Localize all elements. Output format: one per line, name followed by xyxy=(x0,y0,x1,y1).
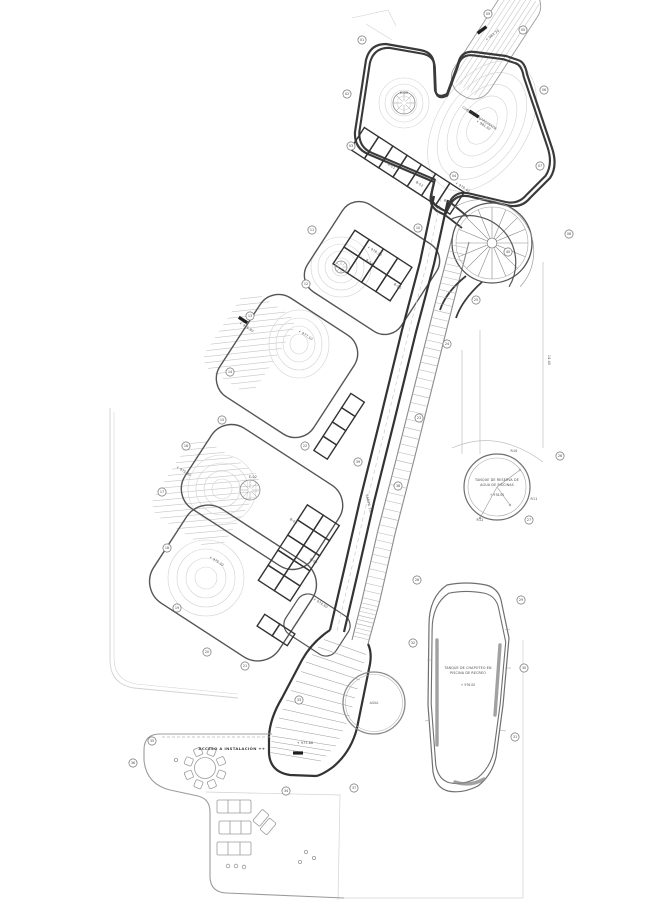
grid-bubble: 39 xyxy=(354,458,362,466)
grid-bubble-number: 38 xyxy=(396,484,400,488)
grid-bubble: 32 xyxy=(409,639,417,647)
grid-bubble-number: 04 xyxy=(452,174,456,178)
chair xyxy=(207,779,217,789)
grid-bubble-number: 27 xyxy=(527,518,531,522)
room-block xyxy=(333,230,412,301)
tank-label-line2: AGUA DE PISCINAS xyxy=(480,483,514,487)
room-block xyxy=(314,393,364,459)
grid-bubble-number: 32 xyxy=(411,641,415,645)
grid-bubble: 38 xyxy=(394,482,402,490)
lower-cluster-outline-a xyxy=(172,415,352,578)
terrace-access-label: ACCESO A INSTALACIÓN ++ xyxy=(199,746,266,751)
plan-label: R11 xyxy=(531,497,538,501)
grid-bubble-number: 18 xyxy=(165,546,169,550)
grid-bubble: 09 xyxy=(484,10,492,18)
grid-bubble: 03 xyxy=(347,142,355,150)
grid-bubble: 23 xyxy=(415,414,423,422)
grid-bubble: 35 xyxy=(148,737,156,745)
label-chips xyxy=(238,25,487,754)
plan-label: + 977.10 xyxy=(298,329,314,341)
grid-bubble-number: 25 xyxy=(474,298,478,302)
grid-bubble: 24 xyxy=(443,340,451,348)
road-edge-left-inner xyxy=(114,412,238,694)
pool-label-line2: PISCINA DE RECREO xyxy=(450,671,486,675)
grid-bubble-number: 19 xyxy=(175,606,179,610)
chair xyxy=(193,779,203,789)
grid-bubble-number: 07 xyxy=(538,164,542,168)
grid-bubble: 34 xyxy=(282,787,290,795)
grid-bubble-number: 30 xyxy=(522,666,526,670)
grid-bubble-number: 24 xyxy=(445,342,449,346)
grid-bubble-number: 01 xyxy=(360,38,364,42)
grid-bubble-number: 11 xyxy=(310,228,314,232)
chair xyxy=(184,770,194,780)
terrace-faint-rect xyxy=(206,792,340,900)
grid-bubble: 33 xyxy=(295,696,303,704)
grid-bubble: 29 xyxy=(517,596,525,604)
ramp-edge-west xyxy=(352,238,452,640)
terrain-contours xyxy=(269,310,329,378)
plan-label: + 973.80 xyxy=(297,741,314,745)
grid-bubble: 26 xyxy=(556,452,564,460)
grid-bubble: 22 xyxy=(301,442,309,450)
grid-bubble-number: 06 xyxy=(542,88,546,92)
plan-micro-labels: CUBIERTA AJARDINADA+ 981.60+ 983.20+ 979… xyxy=(176,29,551,745)
lower-cluster-outline-b xyxy=(140,495,327,671)
grid-bubble: 06 xyxy=(540,86,548,94)
small-spiral-stair xyxy=(393,92,415,114)
grid-bubble-number: 31 xyxy=(513,735,517,739)
plan-label: E-03 xyxy=(400,91,408,95)
grid-bubble-number: 20 xyxy=(205,650,209,654)
terrace-boundary xyxy=(144,734,344,898)
site-boundary-lines xyxy=(110,10,523,900)
label-chip xyxy=(293,751,303,754)
round-table xyxy=(195,758,216,779)
grid-bubble-number: 39 xyxy=(356,460,360,464)
floor-plan-svg: TANQUE DE CHAPOTEO EN PISCINA DE RECREO … xyxy=(0,0,650,920)
grid-bubble: 19 xyxy=(173,604,181,612)
plan-label: + 975.30 xyxy=(209,555,225,567)
ramp-treads xyxy=(353,244,467,639)
grid-bubble-number: 12 xyxy=(304,282,308,286)
spine-wall-east xyxy=(344,200,448,632)
building-outlines xyxy=(140,0,555,898)
planting-hatch xyxy=(194,274,304,406)
grid-bubble: 36 xyxy=(129,759,137,767)
grid-bubble: 28 xyxy=(413,576,421,584)
chair xyxy=(216,756,226,766)
grid-bubble-number: 33 xyxy=(297,698,301,702)
grid-bubble-number: 02 xyxy=(345,92,349,96)
table-chairs xyxy=(184,747,226,789)
road-edge-left xyxy=(110,408,238,698)
room-block xyxy=(257,614,295,645)
topleft-faint-marks xyxy=(352,10,396,40)
terrain-contours xyxy=(379,78,429,128)
grid-bubbles: 0102030405060708091011121314151617181920… xyxy=(129,10,573,795)
grid-bubble: 40 xyxy=(504,248,512,256)
grid-bubble: 10 xyxy=(414,224,422,232)
grid-bubble: 31 xyxy=(511,733,519,741)
grid-bubble: 37 xyxy=(350,784,358,792)
grid-bubble: 15 xyxy=(218,416,226,424)
pool-inner-line xyxy=(431,591,506,783)
tank-elevation: + 978.00 xyxy=(490,493,504,497)
grid-bubble-number: 05 xyxy=(521,28,525,32)
plan-label: + 975.90 xyxy=(176,465,192,477)
mid-cluster-outline xyxy=(297,194,448,342)
grid-bubble-number: 13 xyxy=(248,314,252,318)
grid-bubble: 20 xyxy=(203,648,211,656)
small-spiral-stair xyxy=(240,480,260,500)
tank-dim-arc xyxy=(452,441,543,462)
grid-bubble-number: 35 xyxy=(150,739,154,743)
grid-bubble-number: 26 xyxy=(558,454,562,458)
contour-layer xyxy=(168,41,559,616)
plan-label: R12 xyxy=(477,518,484,522)
grid-bubble-number: 40 xyxy=(506,250,510,254)
grid-bubble: 16 xyxy=(182,442,190,450)
tank-label-line1: TANQUE DE RESERVA DE xyxy=(474,478,519,482)
grid-bubble-number: 22 xyxy=(303,444,307,448)
grid-bubble: 30 xyxy=(520,664,528,672)
grid-bubble: 21 xyxy=(241,662,249,670)
pond-label: AGUA xyxy=(370,701,380,705)
grid-bubble-number: 08 xyxy=(567,232,571,236)
label-chip xyxy=(477,25,488,34)
grid-bubble: 01 xyxy=(358,36,366,44)
grid-bubble: 11 xyxy=(308,226,316,234)
plan-label: 14.40 xyxy=(547,355,551,365)
grid-bubble-number: 29 xyxy=(519,598,523,602)
grid-bubble-number: 34 xyxy=(284,789,288,793)
grid-bubble-number: 15 xyxy=(220,418,224,422)
grid-bubble-number: 10 xyxy=(416,226,420,230)
grid-bubble: 08 xyxy=(565,230,573,238)
grid-bubble-number: 14 xyxy=(228,370,232,374)
grid-bubble-number: 21 xyxy=(243,664,247,668)
grid-bubble: 04 xyxy=(450,172,458,180)
grid-bubble-number: 28 xyxy=(415,578,419,582)
plan-label: R10 xyxy=(511,449,518,453)
grid-bubble: 05 xyxy=(519,26,527,34)
grid-bubble-number: 16 xyxy=(184,444,188,448)
grid-bubble-number: 03 xyxy=(349,144,353,148)
pool-elevation: + 976.00 xyxy=(461,683,475,687)
grid-bubble: 25 xyxy=(472,296,480,304)
grid-bubble: 27 xyxy=(525,516,533,524)
grid-bubble-number: 36 xyxy=(131,761,135,765)
grid-bubble-number: 09 xyxy=(486,12,490,16)
chair xyxy=(184,756,194,766)
grid-bubble: 07 xyxy=(536,162,544,170)
grid-bubble: 13 xyxy=(246,312,254,320)
small-spiral-stair xyxy=(335,261,347,273)
stairs-layer xyxy=(240,92,534,761)
grid-bubble: 12 xyxy=(302,280,310,288)
drawing-sheet: TANQUE DE CHAPOTEO EN PISCINA DE RECREO … xyxy=(0,0,650,920)
plan-label: B-02 xyxy=(415,180,424,188)
grid-bubble-number: 17 xyxy=(160,490,164,494)
room-block xyxy=(258,505,339,601)
chair xyxy=(216,770,226,780)
pool-label-line1: TANQUE DE CHAPOTEO EN xyxy=(443,666,492,670)
grid-bubble-number: 37 xyxy=(352,786,356,790)
grid-bubble: 02 xyxy=(343,90,351,98)
upper-cluster-outline xyxy=(355,44,555,215)
grid-bubble-number: 23 xyxy=(417,416,421,420)
terrace-furniture xyxy=(174,747,315,869)
plan-label: B-06 xyxy=(289,517,298,525)
grid-bubble: 14 xyxy=(226,368,234,376)
grid-bubble: 18 xyxy=(163,544,171,552)
grid-bubble: 17 xyxy=(158,488,166,496)
plan-label: E-02 xyxy=(249,475,257,479)
